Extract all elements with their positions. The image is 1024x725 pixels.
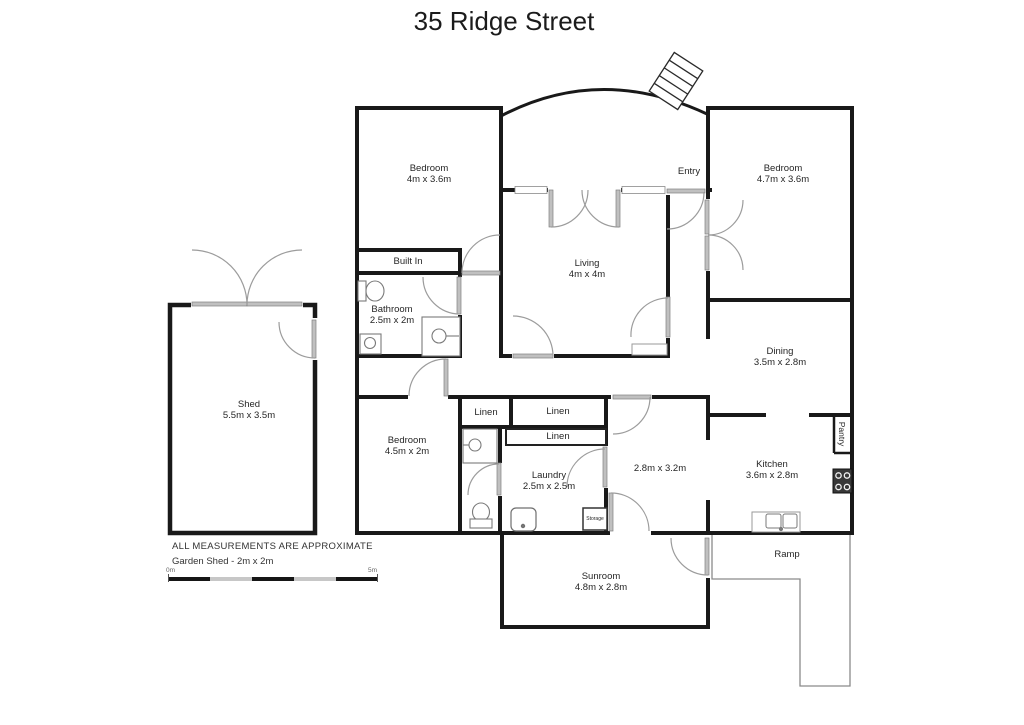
- page-title: 35 Ridge Street: [414, 6, 595, 37]
- bathroom-shower-icon: [422, 317, 460, 356]
- room-name: Laundry: [523, 470, 575, 481]
- label-built-in: Built In: [393, 256, 422, 267]
- room-name: Living: [569, 258, 605, 269]
- bathroom-toilet-icon: [358, 281, 384, 301]
- room-name: Bedroom: [385, 435, 429, 446]
- scale-segment: [294, 577, 336, 581]
- label-ramp: Ramp: [774, 549, 799, 560]
- room-dims: 3.6m x 2.8m: [746, 470, 798, 481]
- room-label-shed: Shed 5.5m x 3.5m: [223, 399, 275, 421]
- room-name: Shed: [223, 399, 275, 410]
- hearth: [632, 344, 667, 355]
- label-pantry: Pantry: [837, 422, 847, 447]
- note-garden-shed: Garden Shed - 2m x 2m: [172, 556, 273, 567]
- scale-segment: [252, 577, 294, 581]
- door-leaves: [192, 189, 709, 575]
- note-disclaimer: ALL MEASUREMENTS ARE APPROXIMATE: [172, 541, 373, 552]
- label-storage: Storage: [586, 516, 604, 522]
- room-label-laundry: Laundry 2.5m x 2.5m: [523, 470, 575, 492]
- label-linen-c: Linen: [546, 431, 569, 442]
- room-dims: 4m x 3.6m: [407, 174, 451, 185]
- room-dims: 4.5m x 2m: [385, 446, 429, 457]
- entry-steps: [649, 52, 703, 109]
- room-dims: 4m x 4m: [569, 269, 605, 280]
- room-label-bedroom-rear: Bedroom 4.5m x 2m: [385, 435, 429, 457]
- scale-segment: [168, 577, 210, 581]
- scale-tick-end: [377, 574, 378, 582]
- scale-tick-start: [168, 574, 169, 582]
- room-dims: 4.7m x 3.6m: [757, 174, 809, 185]
- room-name: Bedroom: [757, 163, 809, 174]
- room-name: Kitchen: [746, 459, 798, 470]
- label-entry: Entry: [678, 166, 700, 177]
- laundry-tub-icon: [511, 508, 536, 531]
- scale-bar: [168, 577, 378, 581]
- door-swing-arcs: [192, 190, 743, 575]
- room-dims: 2.8m x 3.2m: [634, 463, 686, 474]
- room-dims: 3.5m x 2.8m: [754, 357, 806, 368]
- room-label-bedroom-front-right: Bedroom 4.7m x 3.6m: [757, 163, 809, 185]
- room-label-rumpus: 2.8m x 3.2m: [634, 463, 686, 474]
- room-label-dining: Dining 3.5m x 2.8m: [754, 346, 806, 368]
- room-label-bedroom-front-left: Bedroom 4m x 3.6m: [407, 163, 451, 185]
- scale-label-end: 5m: [368, 567, 377, 574]
- stove-icon: [833, 469, 852, 493]
- room-dims: 2.5m x 2.5m: [523, 481, 575, 492]
- scale-label-start: 0m: [166, 567, 175, 574]
- label-linen-b: Linen: [546, 406, 569, 417]
- wc-shower-icon: [463, 429, 497, 463]
- label-linen-a: Linen: [474, 407, 497, 418]
- room-label-bathroom: Bathroom 2.5m x 2m: [370, 304, 414, 326]
- floorplan-page: { "page": { "title": "35 Ridge Street" }…: [0, 0, 1024, 725]
- wc-toilet-icon: [470, 503, 492, 528]
- room-label-living: Living 4m x 4m: [569, 258, 605, 280]
- room-dims: 5.5m x 3.5m: [223, 410, 275, 421]
- room-name: Dining: [754, 346, 806, 357]
- room-name: Sunroom: [575, 571, 627, 582]
- floorplan-drawing: [0, 0, 1024, 725]
- bathroom-basin-icon: [360, 334, 381, 354]
- scale-segment: [210, 577, 252, 581]
- room-name: Bedroom: [407, 163, 451, 174]
- room-dims: 2.5m x 2m: [370, 315, 414, 326]
- kitchen-sink-icon: [766, 514, 797, 531]
- scale-segment: [336, 577, 378, 581]
- room-label-sunroom: Sunroom 4.8m x 2.8m: [575, 571, 627, 593]
- room-name: Bathroom: [370, 304, 414, 315]
- room-dims: 4.8m x 2.8m: [575, 582, 627, 593]
- room-label-kitchen: Kitchen 3.6m x 2.8m: [746, 459, 798, 481]
